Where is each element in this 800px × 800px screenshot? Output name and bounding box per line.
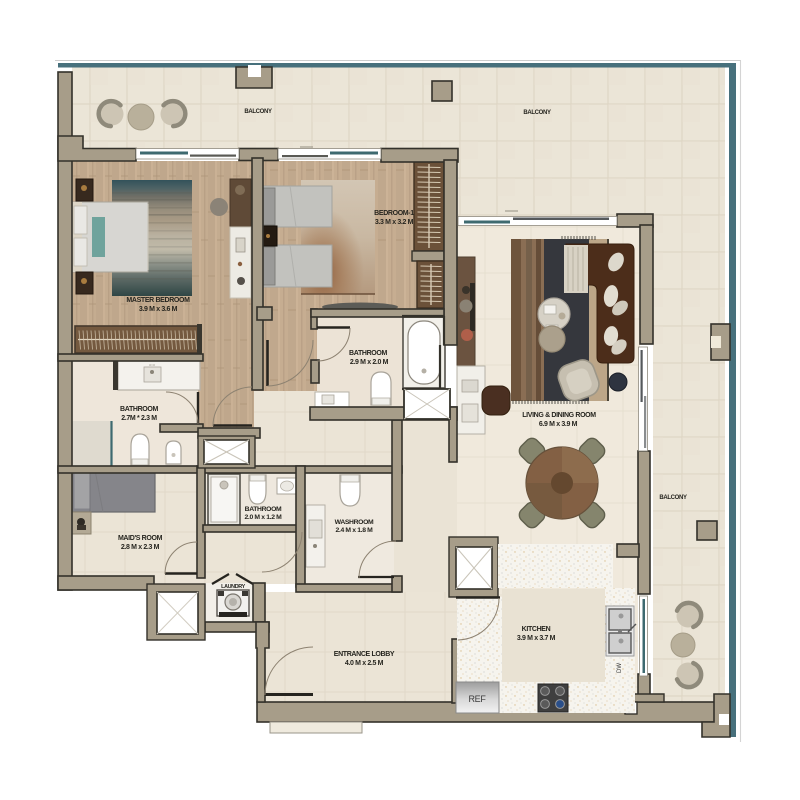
svg-text:3.9 M x 3.7 M: 3.9 M x 3.7 M — [517, 635, 556, 642]
svg-text:BALCONY: BALCONY — [659, 495, 687, 501]
svg-text:LAUNDRY: LAUNDRY — [221, 584, 245, 590]
svg-text:LIVING & DINING ROOM: LIVING & DINING ROOM — [522, 412, 596, 419]
svg-text:ENTRANCE LOBBY: ENTRANCE LOBBY — [334, 651, 395, 658]
svg-text:BALCONY: BALCONY — [244, 109, 272, 115]
svg-text:BATHROOM: BATHROOM — [349, 350, 387, 357]
svg-text:DW: DW — [617, 663, 623, 673]
svg-text:BEDROOM-1: BEDROOM-1 — [374, 210, 414, 217]
svg-text:BATHROOM: BATHROOM — [245, 506, 282, 513]
svg-text:2.4 M x 1.8 M: 2.4 M x 1.8 M — [335, 527, 373, 534]
svg-text:KITCHEN: KITCHEN — [522, 626, 551, 633]
svg-text:2.7M * 2.3 M: 2.7M * 2.3 M — [121, 415, 157, 422]
svg-text:REF: REF — [469, 694, 487, 704]
svg-text:3.3 M x 3.2 M: 3.3 M x 3.2 M — [375, 219, 414, 226]
svg-text:MASTER BEDROOM: MASTER BEDROOM — [126, 297, 190, 304]
svg-text:3.9 M x 3.6 M: 3.9 M x 3.6 M — [139, 306, 178, 313]
svg-text:BALCONY: BALCONY — [523, 110, 551, 116]
svg-text:o o: o o — [149, 362, 155, 367]
svg-text:2.8 M x 2.3 M: 2.8 M x 2.3 M — [121, 544, 160, 551]
svg-text:6.9 M x 3.9 M: 6.9 M x 3.9 M — [539, 421, 578, 428]
svg-text:4.0 M x 2.5 M: 4.0 M x 2.5 M — [345, 660, 384, 667]
svg-text:2.9 M x 2.0 M: 2.9 M x 2.0 M — [350, 359, 389, 366]
svg-text:WASHROOM: WASHROOM — [335, 519, 374, 526]
svg-text:BATHROOM: BATHROOM — [120, 406, 158, 413]
svg-text:2.0 M x 1.2 M: 2.0 M x 1.2 M — [244, 514, 282, 521]
svg-text:MAID'S ROOM: MAID'S ROOM — [118, 535, 163, 542]
